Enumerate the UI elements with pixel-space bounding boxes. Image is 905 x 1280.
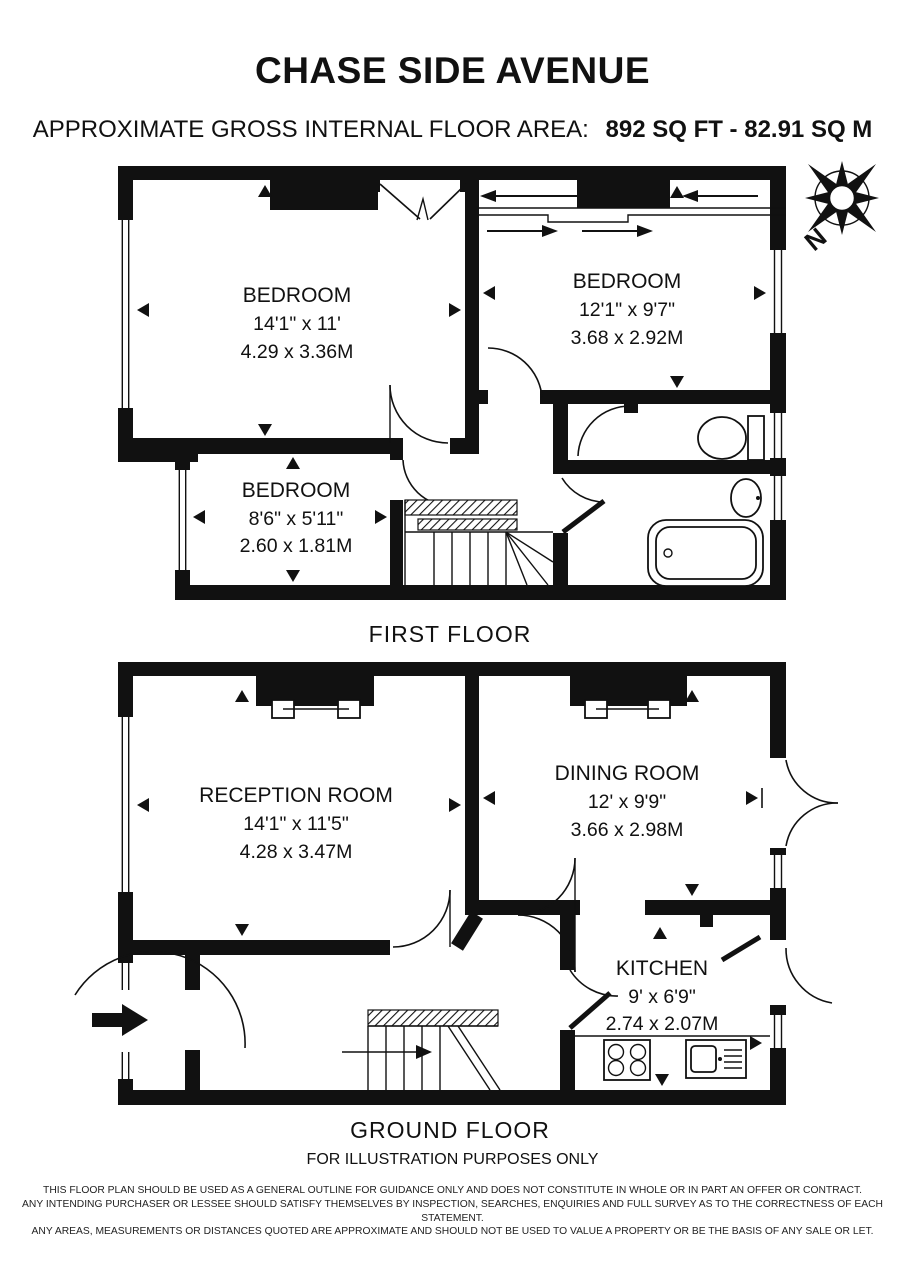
door-arc (578, 406, 630, 456)
bedroom1-imperial: 14'1" x 11' (253, 313, 341, 335)
disclaimer-line: ANY AREAS, MEASUREMENTS OR DISTANCES QUO… (0, 1225, 905, 1239)
dining-name: DINING ROOM (555, 762, 700, 785)
first-floor-label: FIRST FLOOR (369, 621, 532, 647)
kitchen-name: KITCHEN (616, 957, 708, 980)
hob-icon (604, 1040, 650, 1080)
north-label: N (799, 222, 833, 257)
dining-imperial: 12' x 9'9" (588, 791, 666, 813)
bedroom1-name: BEDROOM (243, 284, 352, 307)
disclaimer: THIS FLOOR PLAN SHOULD BE USED AS A GENE… (0, 1184, 905, 1239)
sink-icon (686, 1040, 746, 1078)
kitchen-metric: 2.74 x 2.07M (606, 1013, 719, 1035)
garden-door-arc (786, 948, 832, 1003)
bedroom2-imperial: 12'1" x 9'7" (579, 299, 675, 321)
walls (118, 662, 786, 1105)
bedroom3-name: BEDROOM (242, 479, 351, 502)
ground-floor-plan: RECEPTION ROOM 14'1" x 11'5" 4.28 x 3.47… (75, 662, 838, 1143)
first-floor-plan: BEDROOM 14'1" x 11' 4.29 x 3.36M BEDROOM… (118, 166, 786, 647)
bedroom1-metric: 4.29 x 3.36M (241, 341, 354, 363)
dining-metric: 3.66 x 2.98M (571, 819, 684, 841)
stairs-icon (405, 500, 553, 585)
compass-rose-icon (805, 161, 879, 235)
kitchen-imperial: 9' x 6'9" (628, 986, 696, 1008)
bifold-door-icon (380, 184, 466, 220)
door-arc (562, 478, 604, 502)
basin-icon (731, 479, 761, 517)
stairs-icon (342, 1010, 500, 1090)
bedroom2-name: BEDROOM (573, 270, 682, 293)
bedroom2-metric: 3.68 x 2.92M (571, 327, 684, 349)
door-arc (403, 460, 451, 506)
ground-floor-label: GROUND FLOOR (350, 1117, 550, 1143)
reception-metric: 4.28 x 3.47M (240, 841, 353, 863)
door-arc (570, 970, 618, 996)
illustration-note: FOR ILLUSTRATION PURPOSES ONLY (0, 1151, 905, 1169)
french-door-arc (786, 760, 838, 803)
reception-name: RECEPTION ROOM (199, 784, 393, 807)
disclaimer-line: ANY INTENDING PURCHASER OR LESSEE SHOULD… (0, 1198, 905, 1226)
toilet-icon (698, 416, 764, 460)
bedroom3-metric: 2.60 x 1.81M (240, 535, 353, 557)
disclaimer-line: THIS FLOOR PLAN SHOULD BE USED AS A GENE… (0, 1184, 905, 1198)
floorplan-canvas: BEDROOM 14'1" x 11' 4.29 x 3.36M BEDROOM… (0, 0, 905, 1280)
french-door-arc (786, 803, 838, 846)
chimney-breast (577, 180, 670, 208)
door-arc (393, 890, 450, 947)
door-arc (390, 385, 448, 443)
door-arc (488, 348, 542, 397)
front-door-arc (75, 952, 245, 1048)
reception-imperial: 14'1" x 11'5" (243, 813, 349, 835)
bedroom3-imperial: 8'6" x 5'11" (249, 508, 344, 530)
bathtub-icon (648, 520, 763, 586)
chimney-breast (270, 180, 378, 210)
